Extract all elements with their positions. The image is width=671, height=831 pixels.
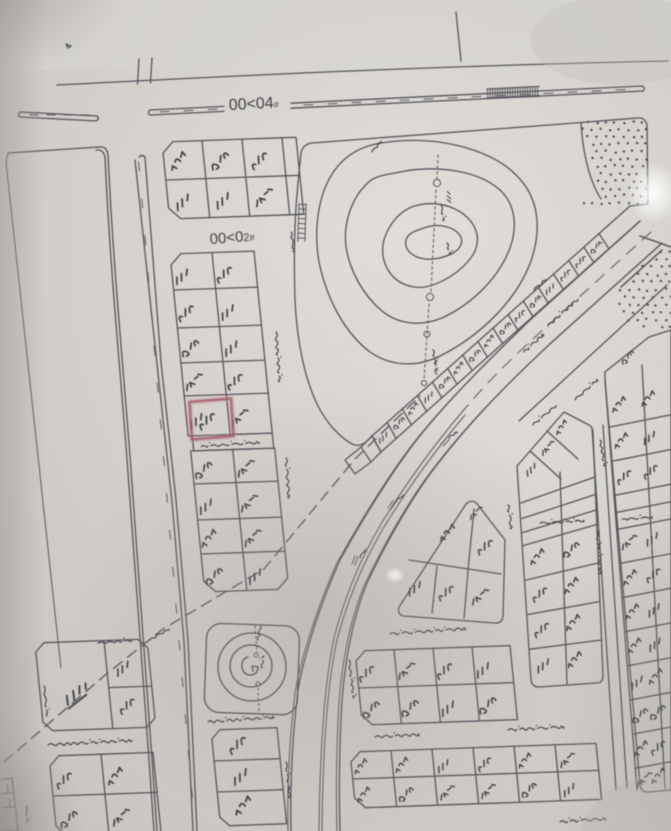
svg-text:00<04#: 00<04# [228,95,279,115]
